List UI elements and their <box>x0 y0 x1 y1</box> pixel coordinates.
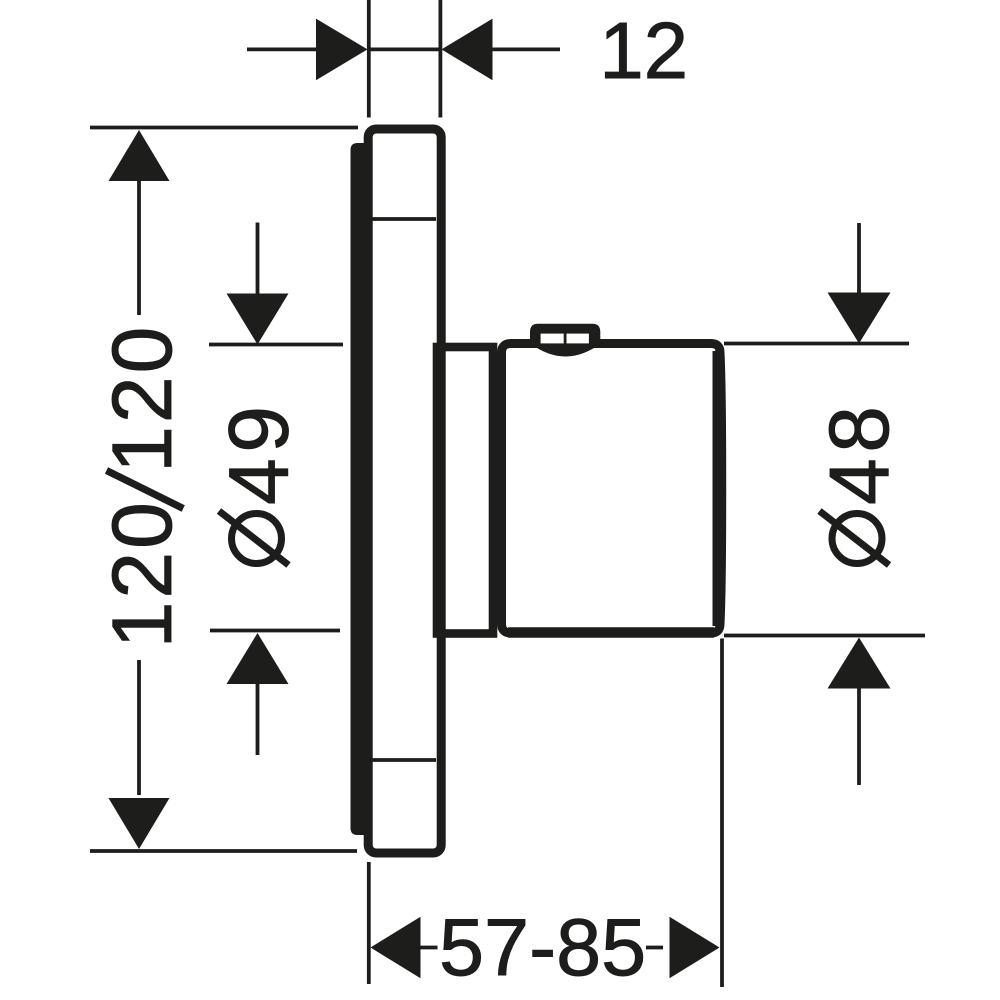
svg-text:49: 49 <box>212 401 306 505</box>
svg-text:48: 48 <box>812 401 906 505</box>
svg-text:12: 12 <box>599 6 688 95</box>
svg-text:57-85: 57-85 <box>439 903 646 993</box>
